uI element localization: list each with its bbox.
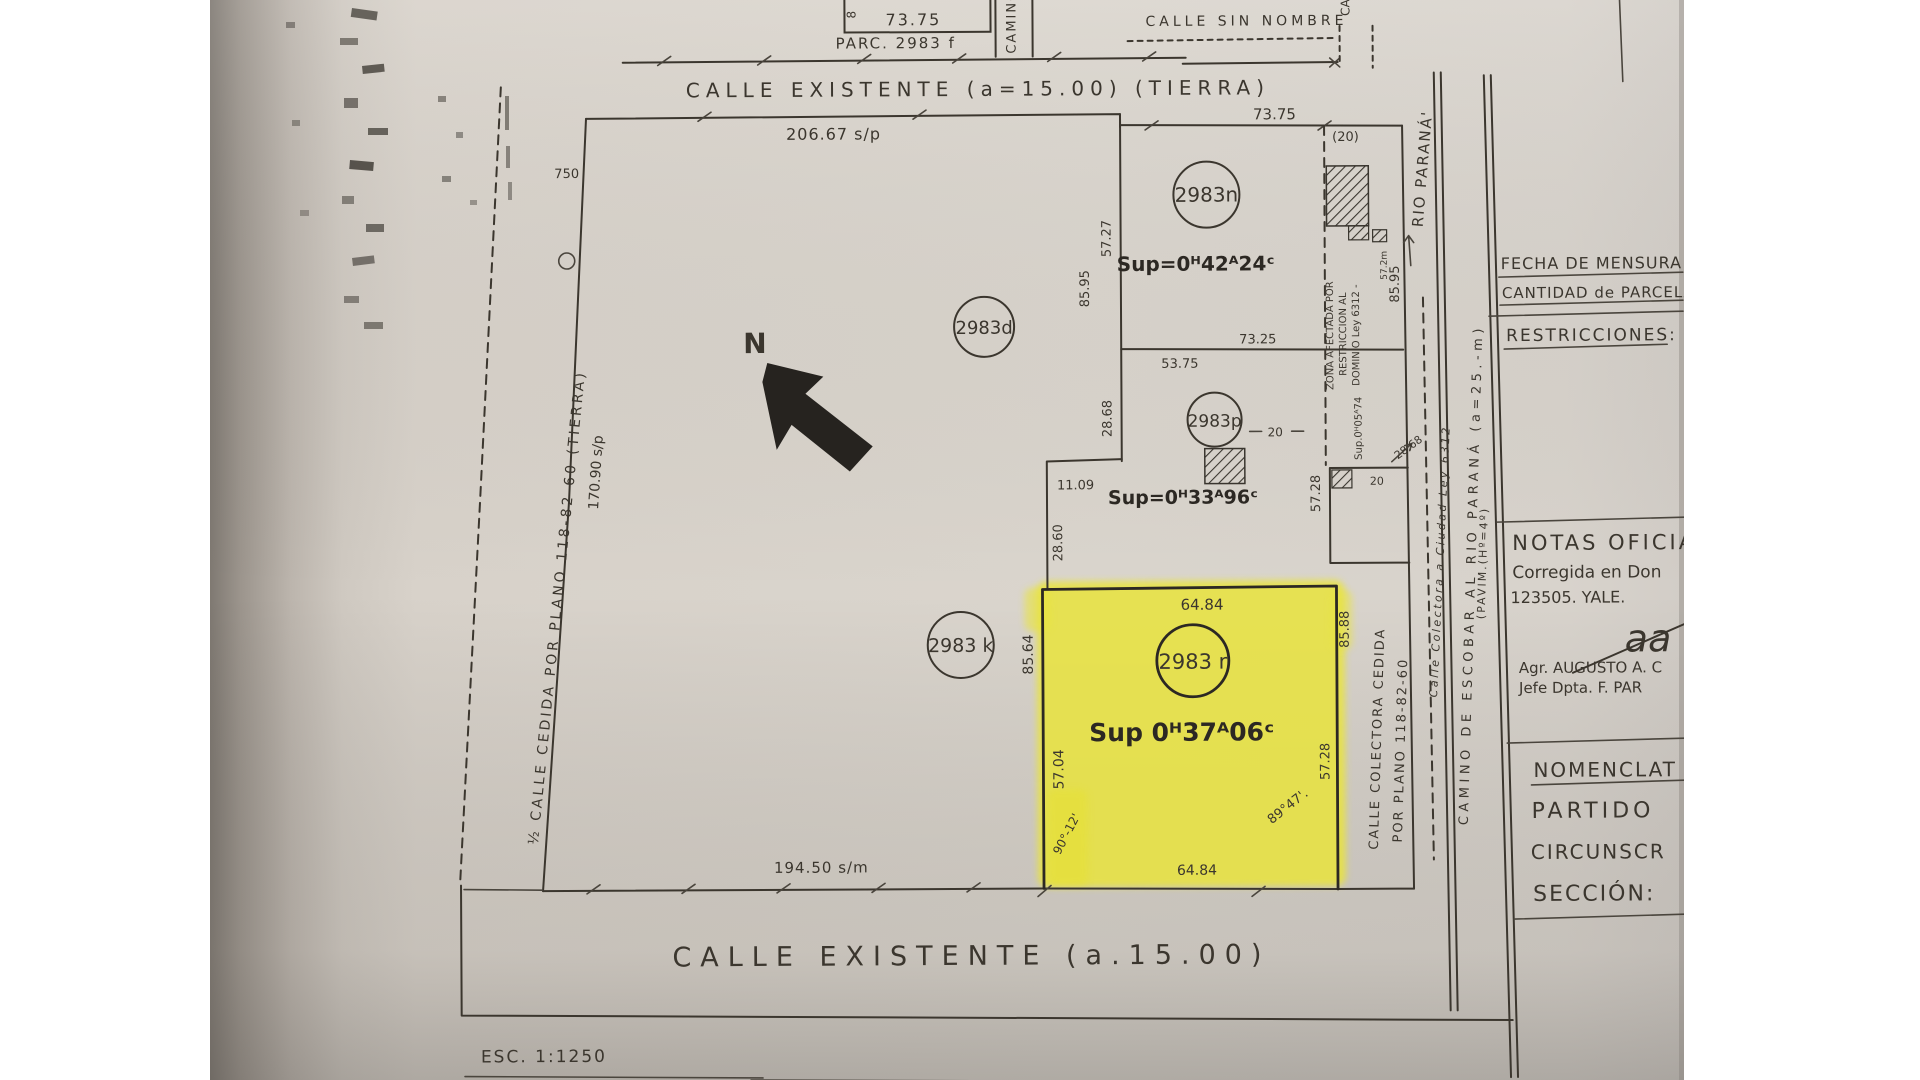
dim-n-right: 85.95 [1388,265,1403,302]
fecha-mensura-label: FECHA DE MENSURA [1501,253,1682,273]
jefe-label: Jefe Dpta. F. PAR [1518,678,1642,697]
dim-r-top: 64.84 [1181,596,1224,614]
parcel-2983p-label: 2983p [1188,411,1242,431]
survey-plan-photo: 8 73.75 PARC. 2983 f CAMINO CALLE SIN NO… [0,0,1920,1080]
notas-line1: Corregida en Don [1512,562,1661,583]
calle-existente-top-label: CALLE EXISTENTE (a=15.00) (TIERRA) [686,75,1270,102]
dim-p-right: 57.28 [1309,475,1324,512]
dim-top: 206.67 s/p [786,124,881,143]
parcel-2983r-area: Sup 0ᴴ37ᴬ06ᶜ [1089,717,1274,747]
bottom-left-tick-line [464,889,542,890]
dim-2983f-width: 73.75 [885,10,941,29]
dim-r-bottom: 64.84 [1177,863,1217,879]
dim-r-right-b: 57.28 [1318,743,1333,780]
dim-r-right-a: 85.88 [1338,611,1353,648]
notas-oficiales-label: NOTAS OFICIAL [1512,530,1711,555]
dim-r-left-b: 57.04 [1051,749,1067,789]
escala-label: ESC. 1:1250 [481,1047,607,1068]
dim-n-bottom: 73.25 [1239,332,1276,347]
dim-p-left: 28.68 [1100,400,1115,437]
zona-text-2: RESTRICCION AL [1338,292,1349,376]
camino-top-right-label: CA [1338,0,1352,16]
calle-sin-nombre-label: CALLE SIN NOMBRE [1145,13,1347,30]
circunscripcion-label: CIRCUNSCR [1531,839,1666,864]
sub-parcel-20: 20 [1370,475,1384,488]
zona-hatch-small2 [1373,230,1387,242]
dim-strip-width: (20) [1332,130,1359,145]
dim-bottom: 194.50 s/m [774,858,869,876]
north-label: N [743,327,767,360]
parcel-p-hatch [1205,448,1245,483]
parcel-2983f-label: PARC. 2983 f [836,34,956,53]
seccion-label: SECCIÓN: [1533,880,1655,907]
zona-hatch [1326,166,1368,226]
dim-left-width: 750 [554,167,579,182]
parcel-2983r-label: 2983 r [1158,650,1227,674]
dim-p-top: 53.75 [1161,357,1198,372]
parcel-2983n-label: 2983n [1175,182,1239,206]
dim-2983n-top: 73.75 [1253,105,1296,123]
dim-p-20: 20 [1268,425,1283,439]
zona-text-3: DOMINIO Ley 6312 - [1351,284,1363,386]
agrimensor-label: Agr. AUGUSTO A. C [1519,658,1662,677]
dim-n-left-a: 57.27 [1100,220,1115,257]
camino-top-label: CAMINO [1004,0,1019,54]
cantidad-parcelas-label: CANTIDAD de PARCELA [1502,283,1695,302]
sub-parcel-area: Sup.0ᴴ05ᴬ74 [1353,397,1364,460]
parcel-2983p-area: Sup=0ᴴ33ᴬ96ᶜ [1108,486,1258,509]
signature-text: aa [1625,616,1672,660]
sub-parcel-hatch [1332,470,1352,488]
dim-p-jog: 11.09 [1057,478,1094,493]
calle-existente-bottom-label: CALLE EXISTENTE (a.15.00) [672,939,1270,973]
zona-small-dim: 57.2m [1380,251,1390,280]
partido-label: PARTIDO [1532,798,1655,824]
dim-n-left-b: 85.95 [1078,270,1093,307]
dim-r-left-a: 85.64 [1021,634,1037,674]
notas-line2: 123505. YALE. [1510,587,1625,607]
dim-2983f-side: 8 [844,11,858,19]
parcel-2983d-label: 2983d [955,318,1012,339]
zona-text-1: ZONA AFECTADA POR [1325,281,1337,390]
nomenclatura-label: NOMENCLAT [1533,757,1677,782]
restricciones-label: RESTRICCIONES: [1506,325,1677,346]
dim-p-left2: 28.60 [1051,524,1066,561]
parcel-2983n-area: Sup=0ᴴ42ᴬ24ᶜ [1117,251,1275,276]
zona-hatch-small [1349,226,1369,240]
paper-lighting [210,0,1684,1080]
parcel-2983k-label: 2983 k [928,635,994,657]
